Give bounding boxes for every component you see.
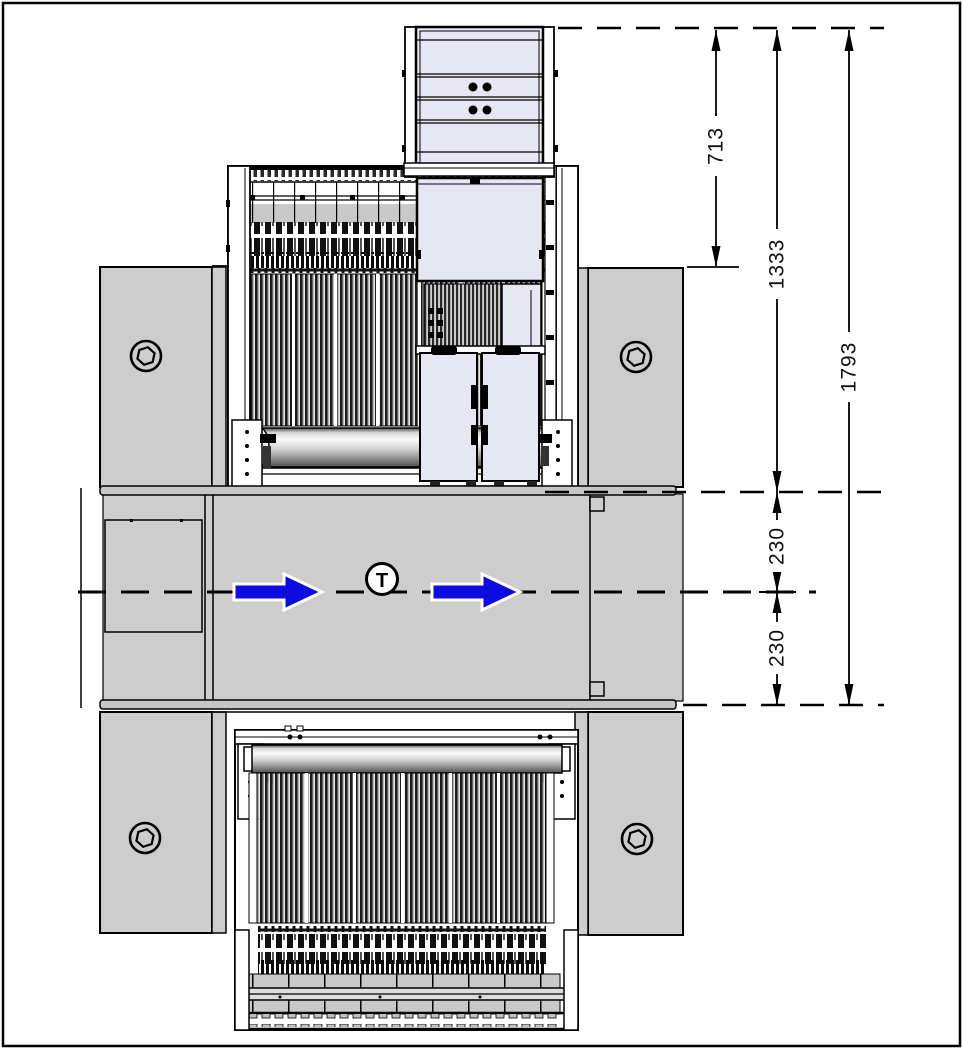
dim-label-230-upper: 230 (766, 527, 789, 565)
transport-symbol-label: T (376, 570, 388, 592)
bottom-brush-assembly (235, 726, 578, 1030)
indicator-dot (469, 83, 478, 92)
cover-box-middle (417, 178, 543, 281)
bristle-row-fine (258, 958, 546, 976)
hinge-icon (495, 346, 521, 355)
filter-section (424, 284, 541, 350)
right-door (482, 353, 539, 481)
roller (252, 745, 562, 773)
comb-rail-bottom (244, 1014, 560, 1027)
dim-label-713: 713 (705, 127, 728, 165)
drawing-page: 713 1333 230 230 (0, 0, 963, 1050)
door-handle-icon (482, 385, 488, 409)
door-handle-icon (471, 385, 477, 409)
dim-label-1793: 1793 (838, 342, 861, 393)
technical-drawing: 713 1333 230 230 (0, 0, 963, 1050)
bottom-left-wing-panel (100, 712, 226, 933)
dim-label-230-lower: 230 (766, 629, 789, 667)
side-access-plate (105, 520, 202, 632)
conveyor-band (81, 486, 683, 712)
control-box-top (416, 27, 543, 174)
indicator-dot (483, 83, 492, 92)
dim-label-1333: 1333 (766, 239, 789, 290)
indicator-dot (469, 106, 478, 115)
door-handle-icon (471, 425, 477, 445)
bottom-right-wing-panel (575, 712, 683, 935)
left-door (420, 353, 477, 481)
indicator-dot (483, 106, 492, 115)
hinge-icon (431, 346, 457, 355)
door-handle-icon (482, 425, 488, 445)
